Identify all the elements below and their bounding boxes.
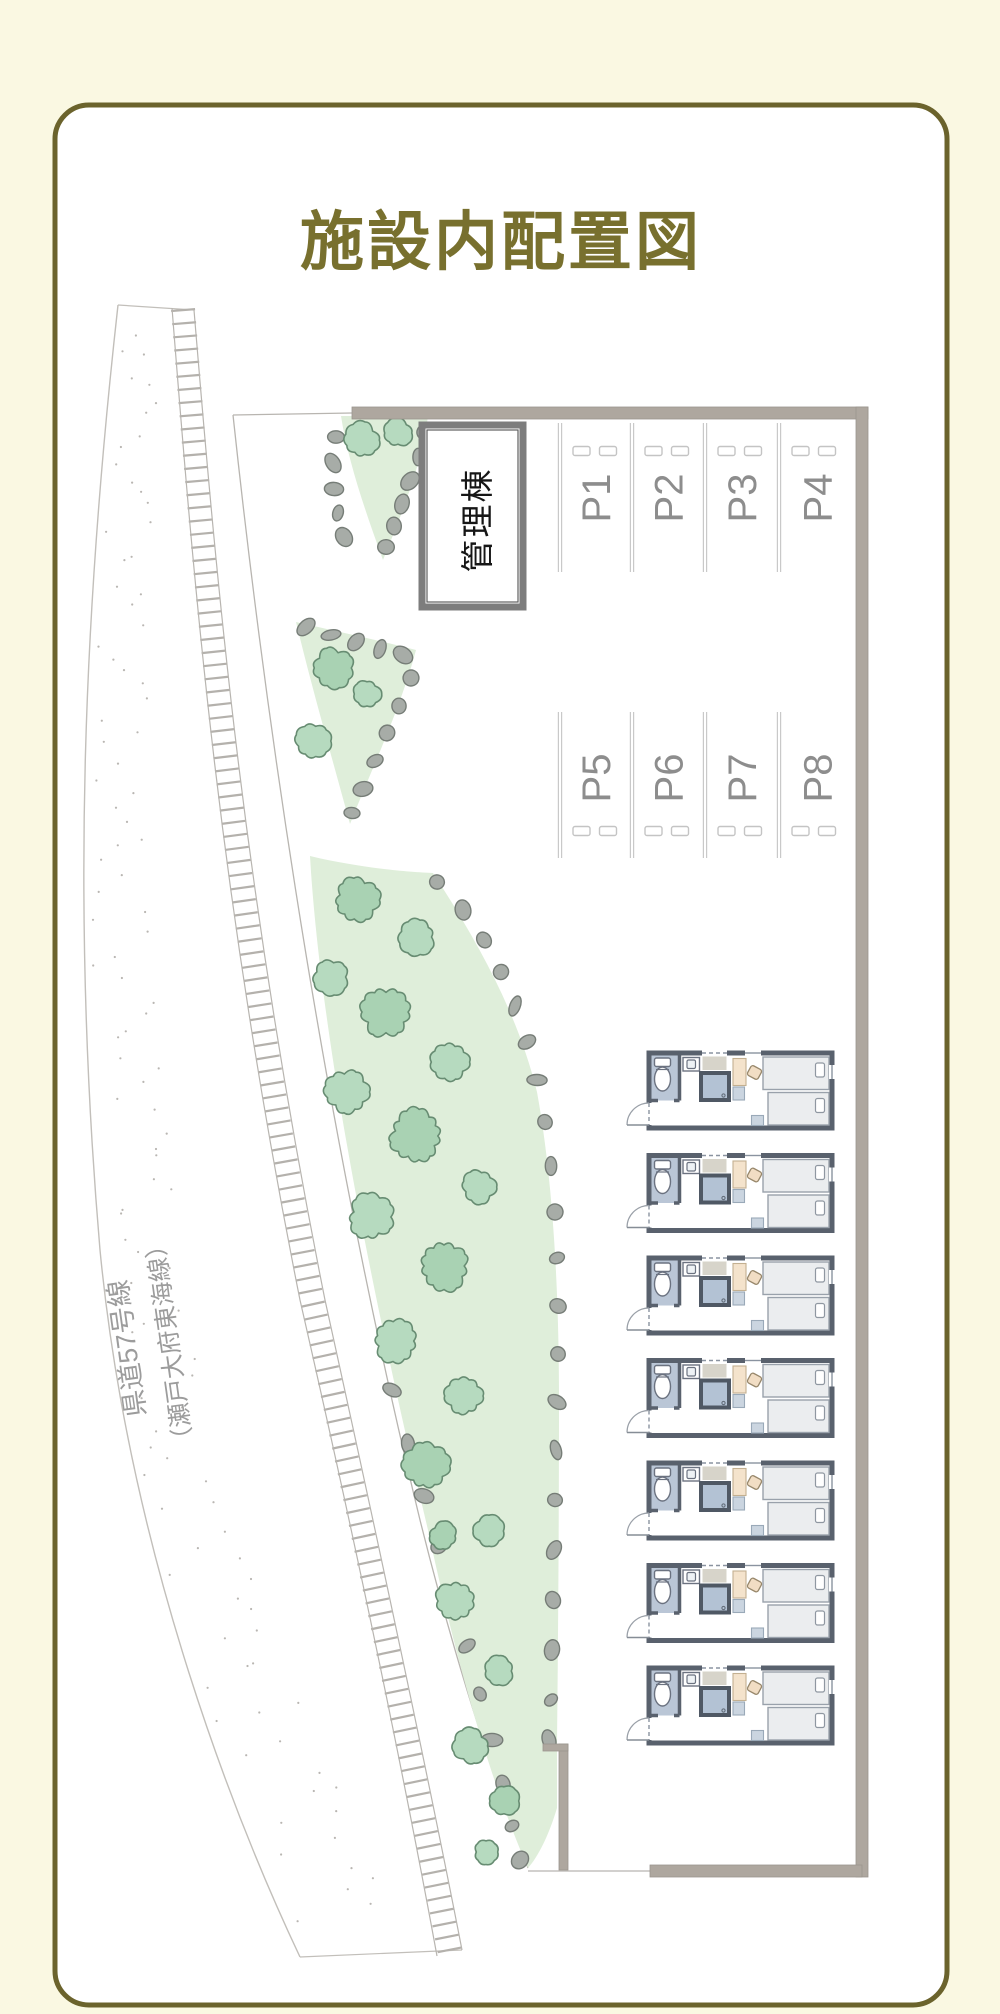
stone-icon [324,482,344,497]
wheel-stop [745,827,762,836]
wheel-stop [573,827,590,836]
stone-icon [392,698,406,714]
trailer-unit-7 [627,1665,835,1743]
site-wall-right [856,407,868,1877]
wheel-stop [645,447,662,456]
trailer-unit-2 [627,1153,835,1231]
parking-label-p4: P4 [797,474,841,523]
parking-label-p5: P5 [575,754,619,803]
wheel-stop [573,447,590,456]
stone-icon [545,1157,557,1176]
wheel-stop [645,827,662,836]
wheel-stop [672,447,689,456]
page-background: 施設内配置図 県道57号線 （瀬戸大府東海線） [0,0,1000,2014]
stone-icon [377,539,394,554]
parking-label-p6: P6 [648,754,692,803]
wheel-stop [600,447,617,456]
wheel-stop [819,447,836,456]
wheel-stop [672,827,689,836]
page-title: 施設内配置図 [300,206,702,278]
parking-label-p1: P1 [575,474,619,523]
stone-icon [327,431,344,444]
tree-icon [313,960,348,996]
site-wall-top [352,407,868,419]
parking-label-p8: P8 [797,754,841,803]
retaining-wall [543,1744,568,1751]
wheel-stop [718,447,735,456]
wheel-stop [745,447,762,456]
site-plan-svg: 施設内配置図 県道57号線 （瀬戸大府東海線） [0,0,1000,2014]
tree-icon [475,1840,498,1864]
trailer-units [627,1050,835,1743]
trailer-unit-1 [627,1050,835,1128]
trailer-unit-5 [627,1460,835,1538]
trailer-unit-4 [627,1358,835,1436]
site-wall-bottom [650,1865,862,1877]
stone-icon [527,1074,548,1086]
tree-icon [350,1192,394,1238]
wheel-stop [792,447,809,456]
parking-label-p2: P2 [648,474,692,523]
management-building: 管理棟 [422,425,523,607]
wheel-stop [600,827,617,836]
wheel-stop [718,827,735,836]
trailer-unit-3 [627,1255,835,1333]
wheel-stop [792,827,809,836]
wheel-stop [819,827,836,836]
trailer-unit-6 [627,1563,835,1641]
parking-label-p3: P3 [721,474,765,523]
tree-icon [360,989,411,1037]
tree-icon [485,1655,513,1685]
parking-label-p7: P7 [721,754,765,803]
building-label: 管理棟 [459,468,496,573]
retaining-wall [559,1744,568,1870]
tree-icon [295,724,332,758]
